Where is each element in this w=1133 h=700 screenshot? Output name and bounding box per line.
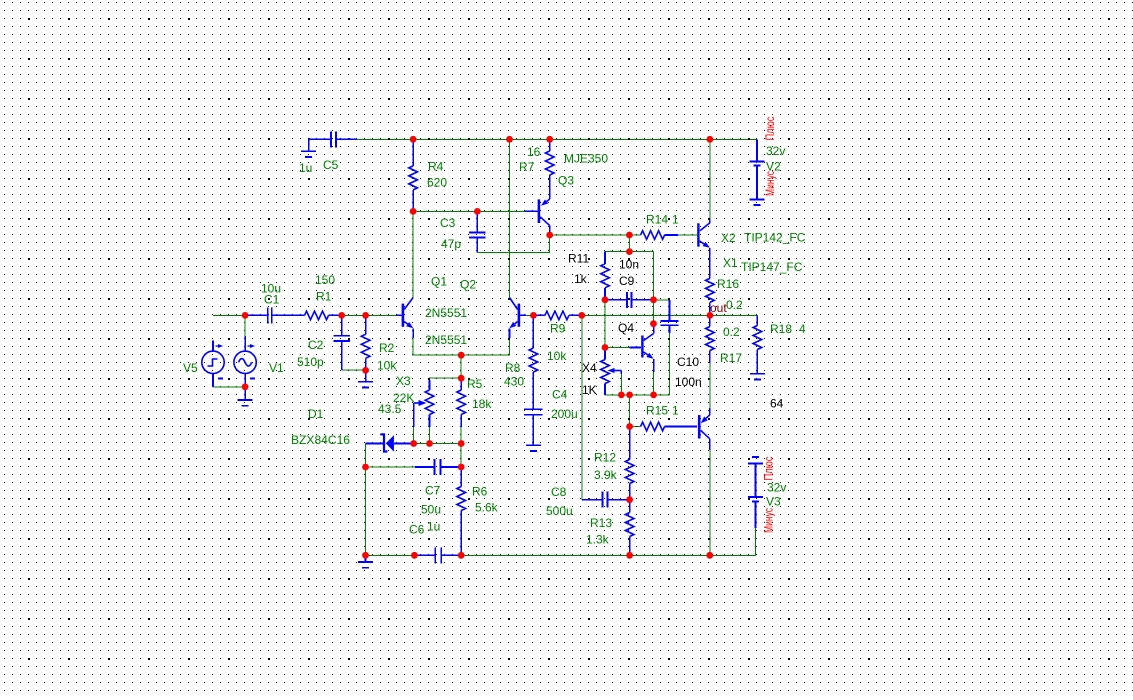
svg-text:50u: 50u: [421, 503, 441, 517]
svg-text:Q2: Q2: [460, 277, 476, 291]
svg-text:TIP142_FC: TIP142_FC: [744, 231, 806, 245]
svg-text:150: 150: [315, 273, 335, 287]
svg-text:47p: 47p: [441, 237, 461, 251]
svg-text:510p: 510p: [297, 355, 324, 369]
svg-text:1u: 1u: [299, 161, 312, 175]
svg-text:C7: C7: [425, 483, 441, 497]
svg-text:X3: X3: [396, 374, 411, 388]
svg-text:MJE350: MJE350: [564, 151, 608, 165]
svg-text:0.2: 0.2: [723, 325, 740, 339]
svg-text:TIP147_FC: TIP147_FC: [741, 260, 803, 274]
svg-text:R4: R4: [428, 159, 444, 173]
svg-text:R6: R6: [472, 485, 488, 499]
svg-text:R14: R14: [646, 213, 668, 227]
svg-text:V3: V3: [766, 495, 781, 509]
svg-text:R17: R17: [720, 351, 742, 365]
svg-text:R7: R7: [519, 160, 535, 174]
svg-text:Минус: Минус: [762, 508, 776, 533]
svg-text:R18: R18: [770, 322, 792, 336]
svg-text:X1: X1: [723, 256, 738, 270]
svg-text:1: 1: [672, 403, 679, 417]
svg-text:18k: 18k: [472, 397, 492, 411]
svg-text:4: 4: [799, 322, 806, 336]
svg-text:2N5551: 2N5551: [425, 333, 467, 347]
svg-text:R15: R15: [646, 403, 668, 417]
svg-text:V1: V1: [269, 361, 284, 375]
svg-text:Плюс: Плюс: [763, 117, 777, 141]
svg-text:32v: 32v: [766, 144, 785, 158]
svg-text:Минус: Минус: [763, 171, 777, 196]
svg-text:V5: V5: [183, 361, 198, 375]
svg-text:C3: C3: [440, 216, 456, 230]
svg-text:out: out: [710, 301, 727, 315]
svg-text:1u: 1u: [427, 519, 440, 533]
svg-text:16: 16: [527, 145, 541, 159]
svg-text:D1: D1: [308, 407, 324, 421]
svg-text:C2: C2: [308, 338, 324, 352]
svg-text:X4: X4: [582, 361, 597, 375]
svg-text:C6: C6: [409, 522, 425, 536]
svg-text:C9: C9: [619, 274, 635, 288]
svg-text:C4: C4: [552, 387, 568, 401]
svg-text:R16: R16: [717, 277, 739, 291]
svg-text:C1: C1: [264, 292, 280, 306]
svg-text:5.6k: 5.6k: [475, 501, 499, 515]
svg-text:100n: 100n: [675, 375, 702, 389]
svg-text:C8: C8: [551, 485, 567, 499]
svg-text:430: 430: [504, 375, 524, 389]
svg-text:2N5551: 2N5551: [425, 306, 467, 320]
svg-text:10k: 10k: [377, 358, 397, 372]
svg-text:X2: X2: [721, 231, 736, 245]
svg-text:R5: R5: [467, 377, 483, 391]
svg-text:R11: R11: [568, 252, 589, 266]
svg-text:R1: R1: [316, 289, 332, 303]
svg-text:1K: 1K: [582, 383, 597, 397]
svg-text:C10: C10: [677, 355, 699, 369]
svg-text:R2: R2: [379, 341, 395, 355]
svg-text:1.3k: 1.3k: [586, 532, 610, 546]
svg-text:10n: 10n: [619, 257, 639, 271]
svg-text:10k: 10k: [547, 349, 567, 363]
svg-text:Q1: Q1: [431, 274, 447, 288]
svg-text:3.9k: 3.9k: [594, 468, 618, 482]
svg-text:620: 620: [427, 175, 447, 189]
svg-text:Q4: Q4: [618, 321, 634, 335]
svg-text:R8: R8: [505, 361, 521, 375]
svg-text:0.2: 0.2: [726, 298, 743, 312]
svg-text:R12: R12: [594, 450, 616, 464]
svg-text:1k: 1k: [574, 272, 588, 286]
svg-text:Q3: Q3: [558, 174, 574, 188]
svg-text:C5: C5: [323, 158, 339, 172]
svg-text:500u: 500u: [546, 504, 573, 518]
svg-text:R9: R9: [550, 322, 566, 336]
svg-text:200u: 200u: [551, 407, 578, 421]
svg-text:43.5: 43.5: [378, 402, 402, 416]
svg-text:1: 1: [672, 213, 679, 227]
svg-text:BZX84C16: BZX84C16: [291, 433, 350, 447]
svg-text:32v: 32v: [767, 480, 786, 494]
svg-text:Плюс: Плюс: [762, 457, 776, 481]
svg-text:64: 64: [770, 396, 784, 410]
svg-text:R13: R13: [590, 516, 612, 530]
